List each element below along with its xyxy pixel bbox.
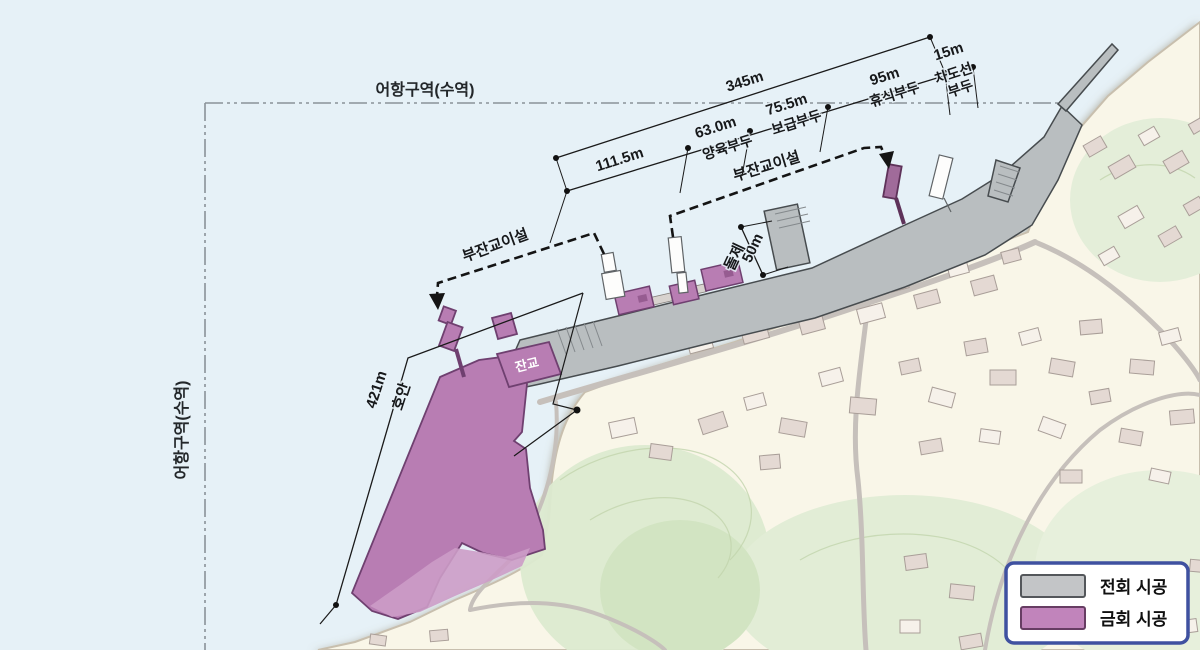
building [369, 634, 386, 646]
building [430, 629, 449, 642]
building [904, 554, 928, 571]
zone-label-top: 어항구역(수역) [376, 80, 475, 99]
plan-canvas: 어항구역(수역) 어항구역(수역) [0, 0, 1200, 650]
zone-label-left: 어항구역(수역) [172, 381, 191, 480]
building [849, 397, 876, 415]
building [900, 620, 920, 633]
building [1190, 559, 1200, 573]
building [649, 444, 673, 461]
building [949, 584, 974, 600]
building [1060, 470, 1082, 483]
building [1169, 409, 1194, 425]
building [990, 370, 1016, 385]
legend: 전회 시공 금회 시공 [1006, 563, 1188, 643]
legend-label-previous: 전회 시공 [1100, 578, 1168, 597]
legend-swatch-previous [1021, 575, 1085, 597]
harbor-plan-map: 어항구역(수역) 어항구역(수역) [0, 0, 1200, 650]
building [979, 429, 1001, 445]
building [1089, 388, 1111, 404]
building [1079, 319, 1102, 335]
legend-label-current: 금회 시공 [1100, 610, 1168, 629]
building [759, 454, 780, 470]
building [1129, 359, 1154, 375]
legend-swatch-current [1021, 607, 1085, 629]
